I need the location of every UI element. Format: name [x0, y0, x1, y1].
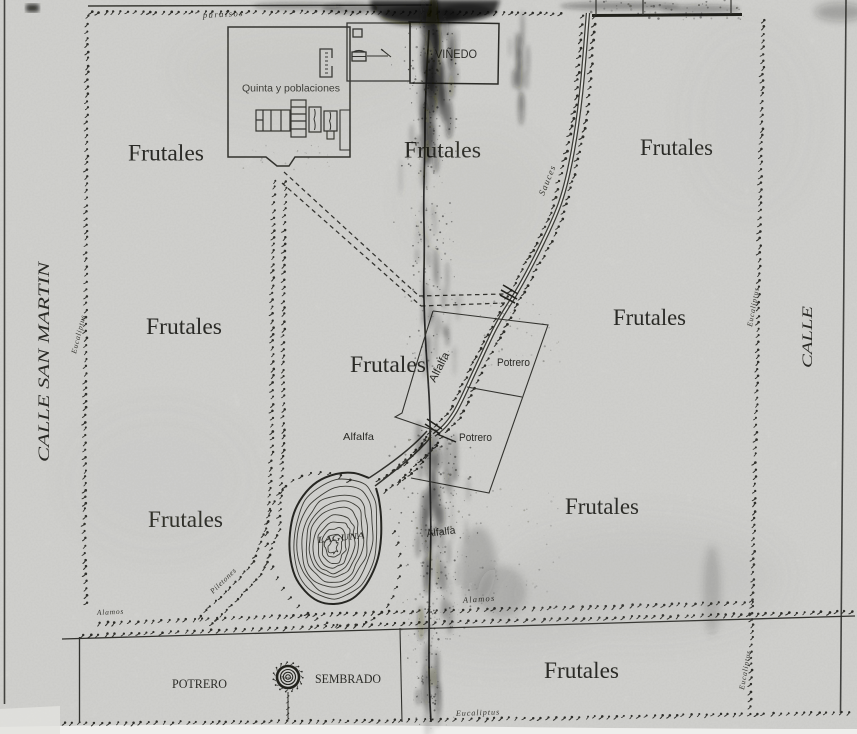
svg-text:Alamos: Alamos [96, 607, 125, 617]
svg-text:Potrero: Potrero [459, 432, 492, 444]
svg-text:Frutales: Frutales [350, 352, 426, 377]
svg-text:Frutales: Frutales [565, 494, 639, 519]
svg-text:CALLE SAN MARTIN: CALLE SAN MARTIN [36, 260, 53, 462]
svg-text:CALLE: CALLE [800, 306, 816, 368]
svg-text:Frutales: Frutales [128, 141, 204, 166]
svg-text:Eucaliptus: Eucaliptus [455, 707, 501, 718]
svg-text:Frutales: Frutales [544, 658, 619, 683]
svg-text:Frutales: Frutales [613, 305, 686, 330]
svg-text:Noria: Noria [280, 675, 292, 680]
svg-text:SEMBRADO: SEMBRADO [315, 672, 381, 686]
svg-text:Frutales: Frutales [146, 314, 222, 339]
svg-text:Alfalfa: Alfalfa [343, 431, 374, 443]
svg-text:POTRERO: POTRERO [172, 677, 227, 691]
svg-text:Potrero: Potrero [497, 357, 530, 369]
